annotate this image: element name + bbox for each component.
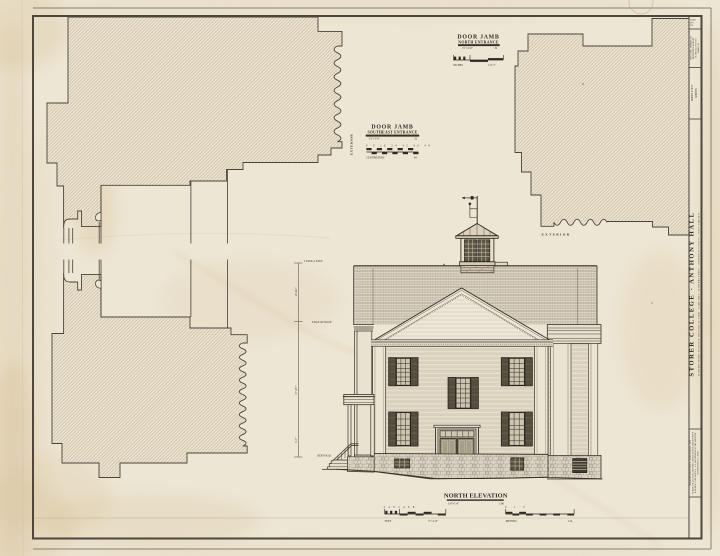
svg-text:METERS: METERS [506, 520, 517, 523]
svg-text:SIDEWALK: SIDEWALK [317, 454, 331, 457]
svg-text:CUPOLA EAVE: CUPOLA EAVE [304, 260, 323, 263]
svg-text:274: 274 [690, 25, 693, 27]
svg-text:½"=1'-0": ½"=1'-0" [428, 520, 438, 523]
svg-text:9'-1": 9'-1" [295, 437, 298, 442]
svg-text:WASHINGTON, D.C. 20240: WASHINGTON, D.C. 20240 [697, 451, 700, 475]
svg-text:0 8 16 24 32 40 48: 0 8 16 24 32 40 48 [366, 144, 432, 147]
svg-text:SOUTHEAST ENTRANCE: SOUTHEAST ENTRANCE [367, 131, 417, 135]
svg-text:WV: WV [690, 22, 694, 24]
svg-text:HARPERS FERRY NATIONAL HISTORI: HARPERS FERRY NATIONAL HISTORICAL PARK ·… [697, 212, 700, 376]
svg-text:1:96: 1:96 [499, 503, 504, 506]
svg-text:CENTIMETERS: CENTIMETERS [366, 157, 384, 160]
svg-text:SHEET 4 OF 6: SHEET 4 OF 6 [691, 84, 694, 101]
svg-text:27'-6½": 27'-6½" [295, 386, 298, 395]
svg-text:STORER COLLEGE · ANTHONY HALL: STORER COLLEGE · ANTHONY HALL [689, 211, 696, 376]
svg-text:SHEET 24: SHEET 24 [698, 42, 700, 53]
svg-text:1'-0 ½": 1'-0 ½" [488, 64, 496, 67]
svg-text:1½"=1'-0": 1½"=1'-0" [462, 47, 473, 50]
svg-text:EXTERIOR: EXTERIOR [542, 233, 571, 237]
svg-text:FEET: FEET [385, 520, 392, 523]
svg-text:1/8"=1'-0": 1/8"=1'-0" [448, 503, 459, 506]
svg-text:SHEETS: SHEETS [695, 88, 698, 98]
svg-text:EDGE OF ROOF: EDGE OF ROOF [312, 321, 332, 324]
svg-text:1½"=1'-0": 1½"=1'-0" [369, 137, 380, 140]
svg-text:HABS: HABS [690, 19, 696, 22]
svg-text:4 2 0 2 4 6 8: 4 2 0 2 4 6 8 [384, 506, 416, 509]
svg-text:NORTH ELEVATION: NORTH ELEVATION [444, 492, 508, 499]
svg-text:EXTERIOR: EXTERIOR [349, 134, 353, 155]
svg-text:NORTH ENTRANCE: NORTH ENTRANCE [458, 40, 499, 44]
svg-text:19'-4¾": 19'-4¾" [295, 288, 298, 297]
svg-text:0 1 2: 0 1 2 [505, 506, 528, 509]
svg-text:INCHES: INCHES [454, 64, 464, 67]
